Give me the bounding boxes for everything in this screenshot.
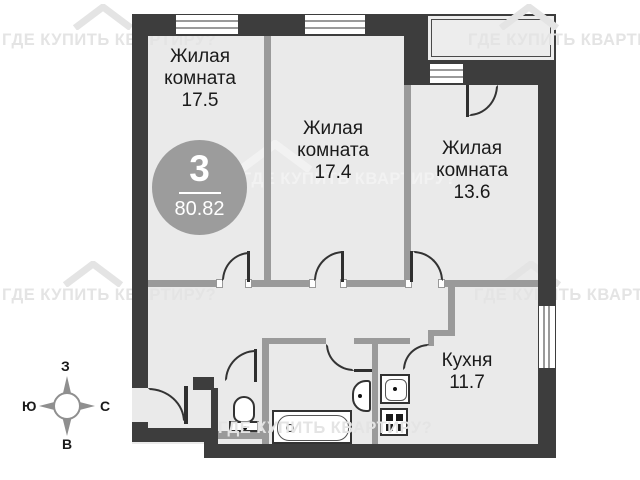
compass-rose: З Ю С В [24, 362, 116, 452]
room2-label: Жилая комната 17.4 [273, 118, 393, 184]
corridor-wall-a [148, 280, 222, 287]
window-room1 [176, 15, 238, 34]
wall-wc-left [211, 388, 218, 444]
room1-name: Жилая комната [164, 46, 236, 89]
compass-west: З [61, 358, 70, 374]
wall-right [538, 62, 556, 458]
kitchen-name: Кухня [442, 350, 493, 371]
wall-below-balcony [404, 62, 556, 85]
watermark-text: ГДЕ КУПИТЬ КВАРТИРУ? [474, 286, 640, 305]
kitchen-stub-v [448, 287, 455, 332]
watermark-text: ГДЕ КУПИТЬ КВАРТИРУ? [468, 31, 640, 50]
watermark-text: ГДЕ КУПИТЬ КВАРТИРУ? [218, 419, 432, 438]
rooms-count: 3 [152, 150, 247, 189]
corridor-wall-c [344, 280, 410, 287]
room2-area: 17.4 [273, 162, 393, 184]
corridor-wall-b [250, 280, 314, 287]
bath-wall-left [262, 338, 326, 344]
room1-label: Жилая комната 17.5 [140, 46, 260, 112]
wall-bottom-right [204, 444, 556, 458]
window-room3 [430, 64, 463, 83]
floor-plan-canvas: ГДЕ КУПИТЬ КВАРТИРУ? ГДЕ КУПИТЬ КВАРТИРУ… [0, 0, 640, 480]
partition-room1-room2 [264, 36, 271, 286]
room2-name: Жилая комната [297, 118, 369, 161]
kitchen-sink [380, 374, 410, 404]
compass-north: С [100, 398, 110, 414]
total-area: 80.82 [152, 198, 247, 221]
corridor-wall-kitchen [443, 280, 538, 287]
compass-east: В [62, 436, 72, 452]
kitchen-label: Кухня 11.7 [408, 350, 526, 394]
kitchen-area: 11.7 [408, 372, 526, 394]
bath-wall-right [354, 338, 410, 344]
badge-divider [179, 192, 221, 194]
room3-label: Жилая комната 13.6 [412, 138, 532, 204]
room1-area: 17.5 [140, 90, 260, 112]
watermark-text: ГДЕ КУПИТЬ КВАРТИРУ? [2, 286, 216, 305]
compass-south: Ю [22, 398, 36, 414]
bathroom-sink [352, 380, 371, 412]
door-leaf-bathroom [354, 369, 372, 372]
room3-area: 13.6 [412, 182, 532, 204]
window-kitchen [539, 306, 555, 368]
window-room2 [305, 15, 365, 34]
apartment-summary-badge: 3 80.82 [152, 140, 247, 235]
room3-name: Жилая комната [436, 138, 508, 181]
